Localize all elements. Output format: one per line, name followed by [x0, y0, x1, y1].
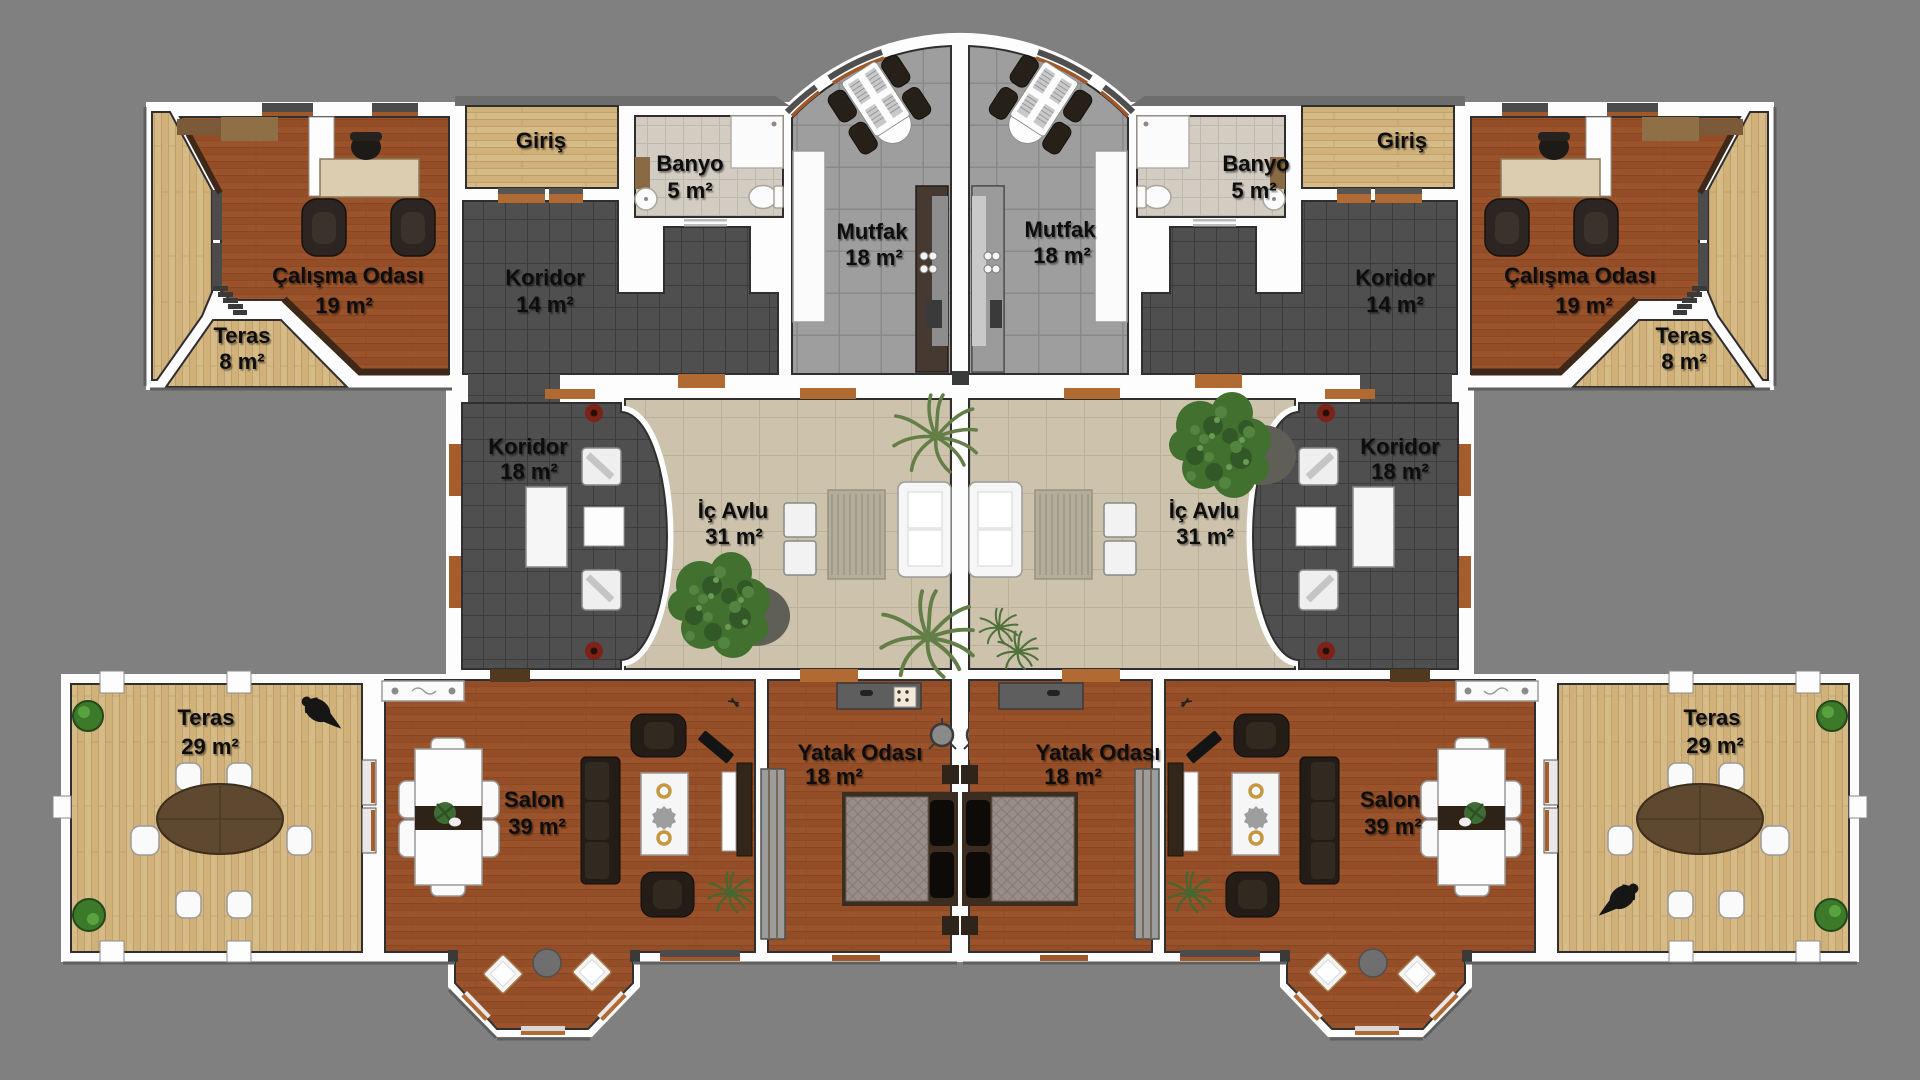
- svg-text:Koridor: Koridor: [1360, 434, 1440, 459]
- svg-text:Teras: Teras: [213, 323, 270, 348]
- svg-text:Çalışma Odası: Çalışma Odası: [272, 263, 424, 288]
- svg-text:Mutfak: Mutfak: [1025, 217, 1097, 242]
- svg-text:Giriş: Giriş: [516, 128, 566, 153]
- svg-text:Koridor: Koridor: [488, 434, 568, 459]
- svg-text:İç Avlu: İç Avlu: [1169, 498, 1240, 523]
- svg-text:8 m²: 8 m²: [1661, 349, 1706, 374]
- svg-text:29 m²: 29 m²: [181, 734, 238, 759]
- svg-text:39 m²: 39 m²: [1364, 814, 1421, 839]
- svg-text:18 m²: 18 m²: [500, 459, 557, 484]
- svg-text:Koridor: Koridor: [1355, 265, 1435, 290]
- svg-text:19 m²: 19 m²: [315, 293, 372, 318]
- svg-text:Yatak Odası: Yatak Odası: [798, 740, 923, 765]
- svg-text:Teras: Teras: [1683, 705, 1740, 730]
- svg-text:Salon: Salon: [1360, 787, 1420, 812]
- svg-text:31 m²: 31 m²: [705, 524, 762, 549]
- svg-text:Banyo: Banyo: [656, 151, 723, 176]
- svg-text:Yatak Odası: Yatak Odası: [1036, 740, 1161, 765]
- svg-text:İç Avlu: İç Avlu: [698, 498, 769, 523]
- svg-text:39 m²: 39 m²: [508, 814, 565, 839]
- svg-text:8 m²: 8 m²: [219, 349, 264, 374]
- svg-text:18 m²: 18 m²: [1033, 243, 1090, 268]
- svg-text:Koridor: Koridor: [505, 265, 585, 290]
- svg-text:19 m²: 19 m²: [1555, 293, 1612, 318]
- svg-text:18 m²: 18 m²: [845, 245, 902, 270]
- svg-text:14 m²: 14 m²: [516, 292, 573, 317]
- svg-text:5 m²: 5 m²: [1231, 178, 1276, 203]
- svg-text:18 m²: 18 m²: [1044, 764, 1101, 789]
- svg-text:18 m²: 18 m²: [805, 764, 862, 789]
- svg-text:Teras: Teras: [1655, 323, 1712, 348]
- svg-text:14 m²: 14 m²: [1366, 292, 1423, 317]
- svg-text:29 m²: 29 m²: [1686, 733, 1743, 758]
- svg-text:Teras: Teras: [177, 705, 234, 730]
- svg-text:Giriş: Giriş: [1377, 128, 1427, 153]
- svg-text:Çalışma Odası: Çalışma Odası: [1504, 263, 1656, 288]
- svg-text:5 m²: 5 m²: [667, 178, 712, 203]
- svg-text:31 m²: 31 m²: [1176, 524, 1233, 549]
- svg-text:Banyo: Banyo: [1222, 151, 1289, 176]
- svg-text:Mutfak: Mutfak: [837, 219, 909, 244]
- svg-text:18 m²: 18 m²: [1371, 459, 1428, 484]
- svg-text:Salon: Salon: [504, 787, 564, 812]
